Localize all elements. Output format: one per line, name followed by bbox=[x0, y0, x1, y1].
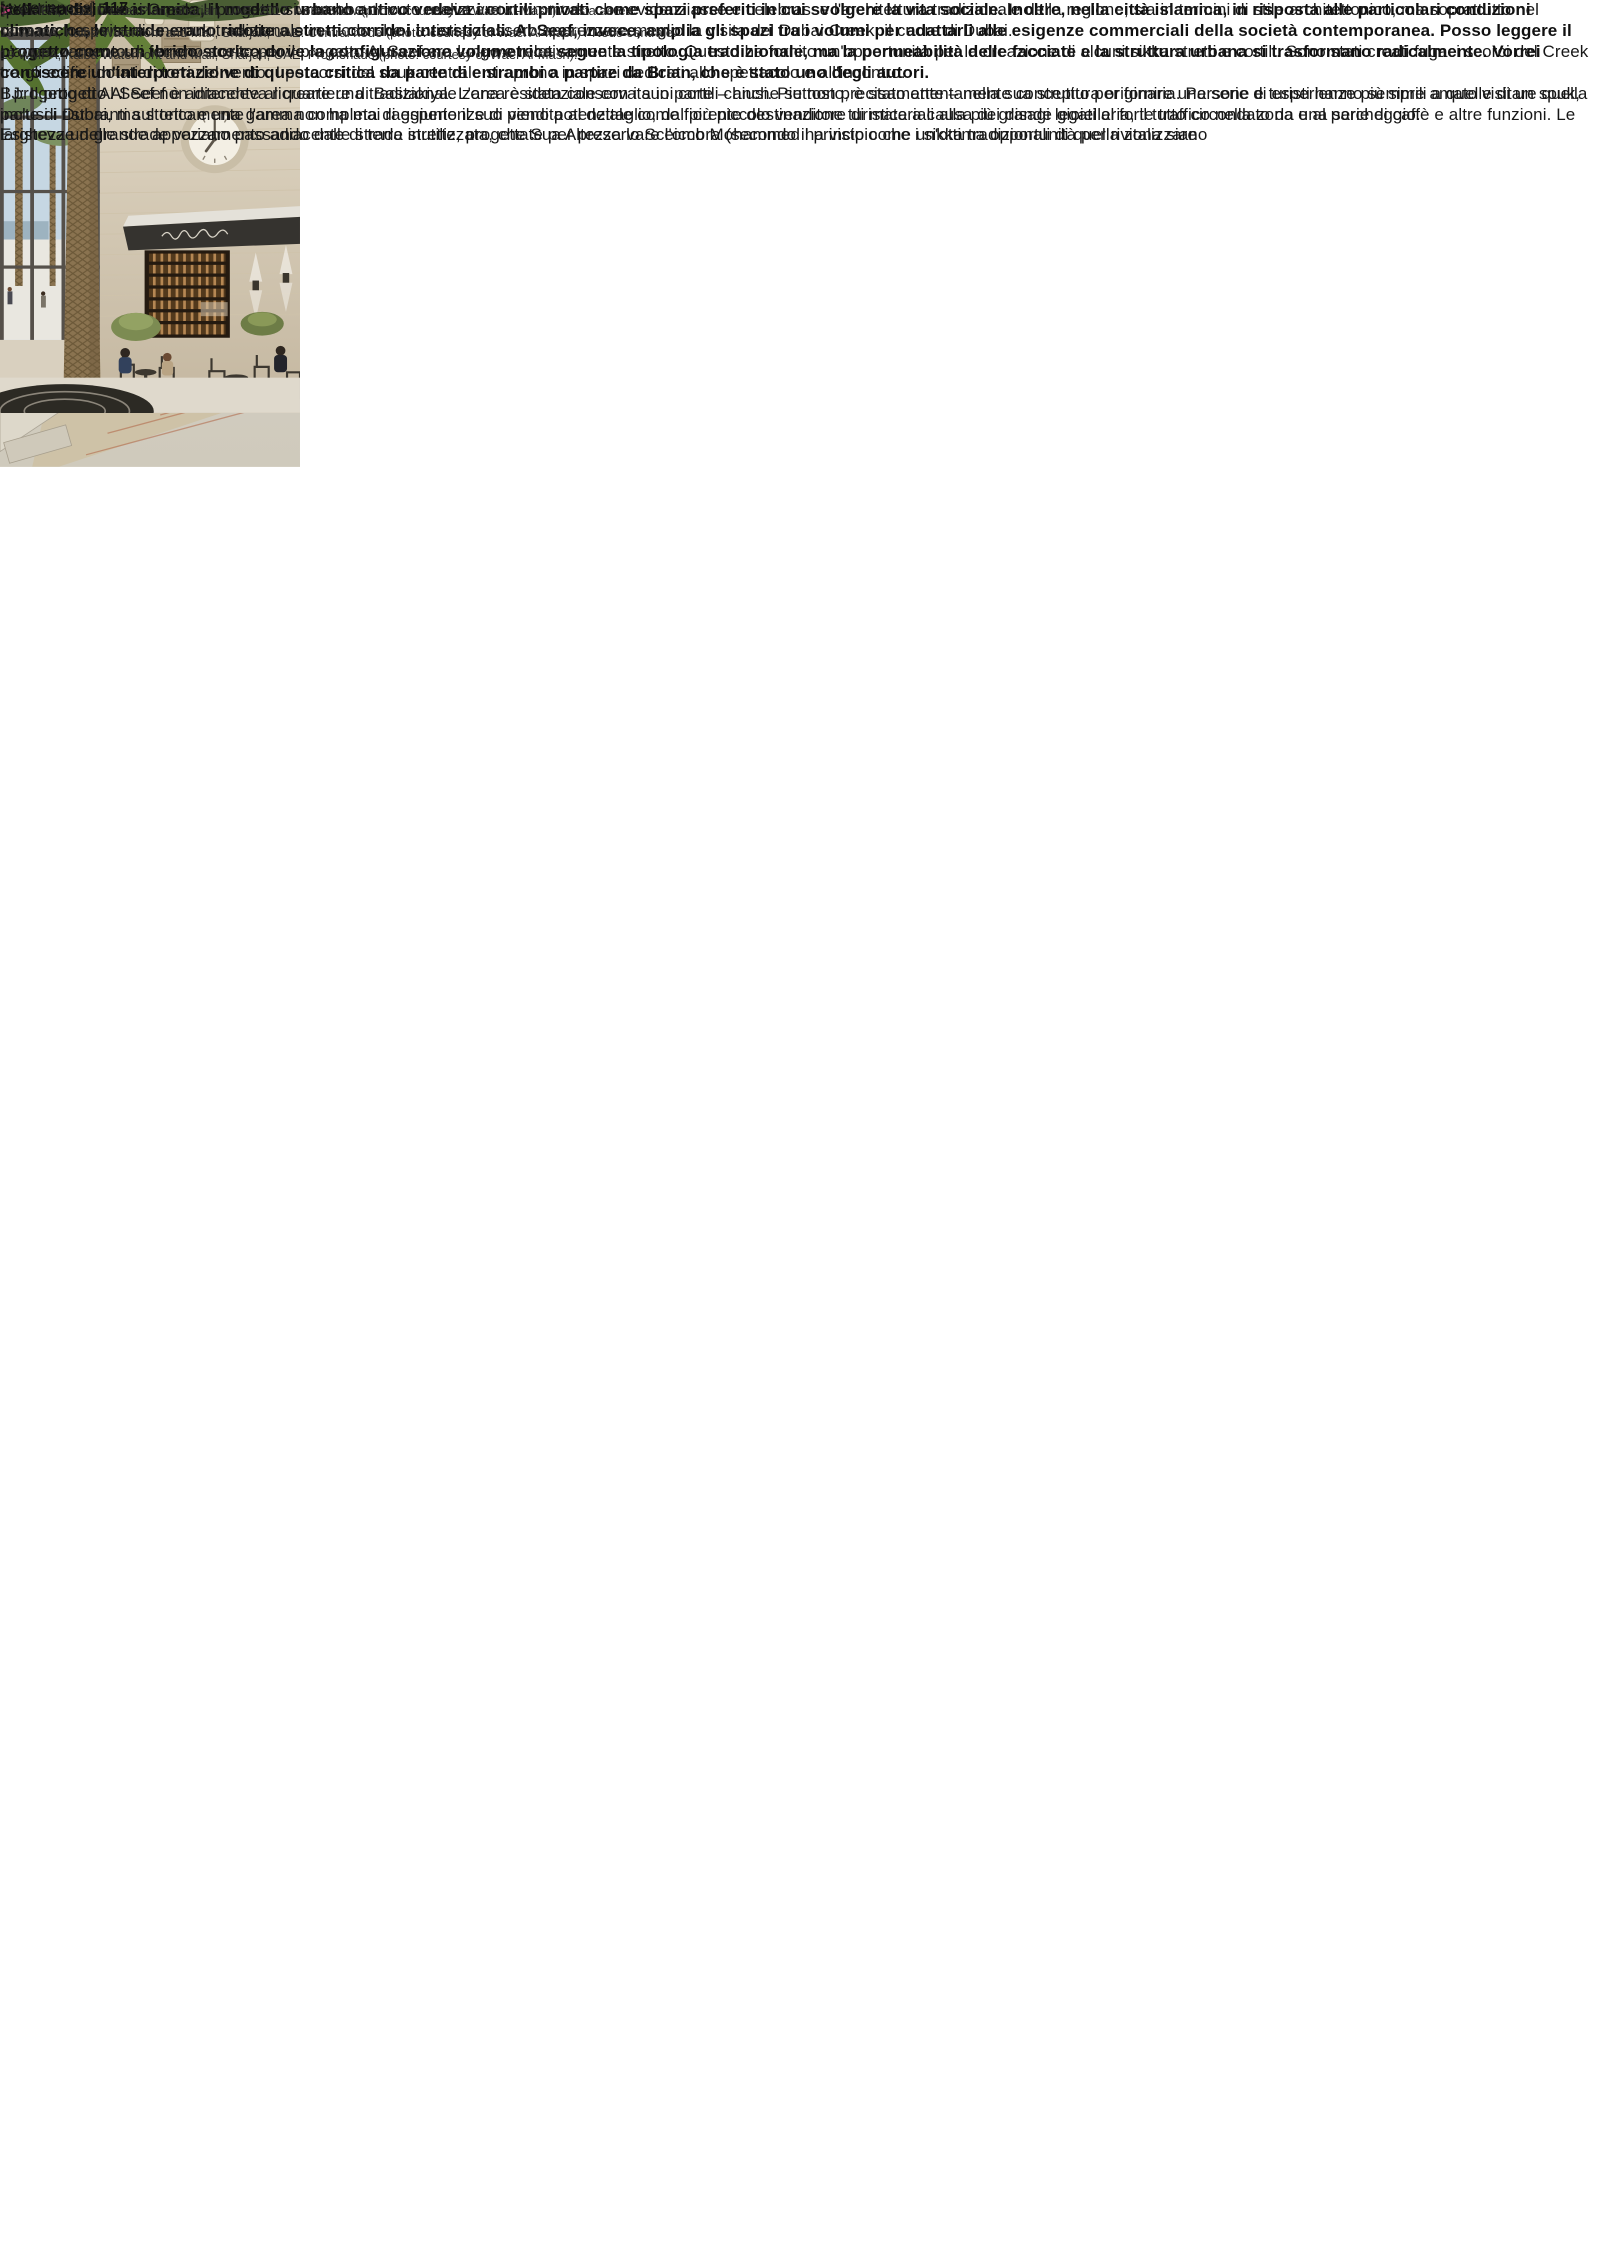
footer-page-number: 117 bbox=[102, 0, 128, 17]
floor bbox=[0, 378, 300, 413]
caption-line-19: 19 WMPA, Kalba Waterfront and Mall, Shar… bbox=[0, 44, 677, 66]
footer-section-label: [experiences] bbox=[0, 0, 95, 17]
page-footer: [experiences]117 bbox=[0, 0, 128, 18]
answer-paragraph-5: Il progetto di Al Seef non intendeva ric… bbox=[0, 84, 1600, 147]
magazine-page: 19 bbox=[0, 0, 1600, 2264]
caption-line-18: 18 WMPA, Kalba Waterfront and Mall, Shar… bbox=[0, 22, 677, 44]
